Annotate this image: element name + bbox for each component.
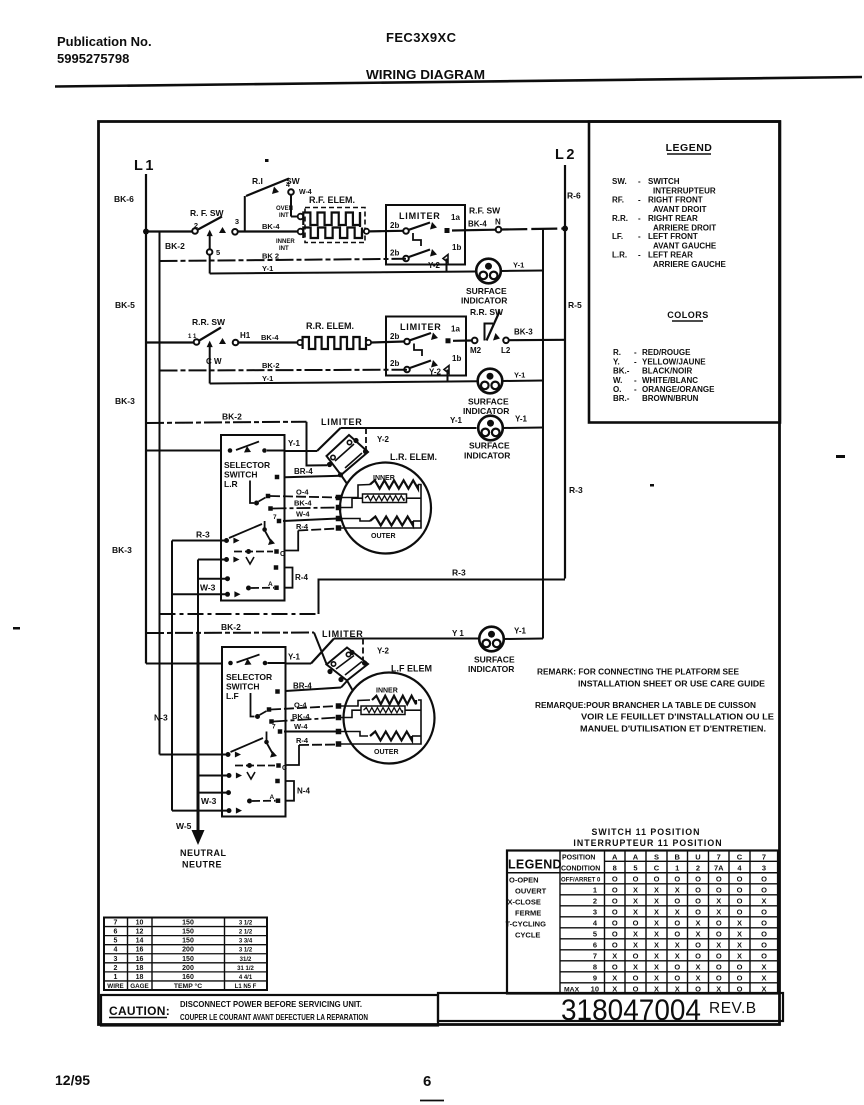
svg-text:-: - <box>638 232 641 241</box>
svg-text:BLACK/NOIR: BLACK/NOIR <box>642 367 692 376</box>
svg-text:X: X <box>695 974 700 983</box>
svg-text:L2: L2 <box>501 346 511 355</box>
svg-text:7: 7 <box>762 853 766 862</box>
svg-text:SWITCH: SWITCH <box>224 470 258 480</box>
svg-text:R-3: R-3 <box>569 485 583 495</box>
svg-text:-: - <box>634 348 637 357</box>
svg-text:SELECTOR: SELECTOR <box>226 672 272 682</box>
svg-text:C: C <box>654 864 660 873</box>
svg-text:O: O <box>761 908 767 917</box>
svg-text:O: O <box>737 875 743 884</box>
svg-text:W-3: W-3 <box>201 796 217 806</box>
svg-text:COLORS: COLORS <box>667 310 709 320</box>
svg-text:NEUTRE: NEUTRE <box>182 860 222 870</box>
svg-text:O: O <box>612 963 618 972</box>
svg-text:LIMITER: LIMITER <box>400 322 442 332</box>
svg-text:INDICATOR: INDICATOR <box>461 296 507 306</box>
svg-text:RIGHT FRONT: RIGHT FRONT <box>648 196 703 205</box>
svg-text:X: X <box>654 919 659 928</box>
svg-text:L.R. ELEM.: L.R. ELEM. <box>390 452 437 462</box>
svg-text:16: 16 <box>136 956 144 963</box>
svg-text:O: O <box>716 974 722 983</box>
svg-text:SWITCH: SWITCH <box>226 682 260 692</box>
svg-text:O: O <box>654 875 660 884</box>
svg-text:INT: INT <box>279 246 289 252</box>
svg-text:7: 7 <box>273 514 277 521</box>
svg-text:R.: R. <box>613 348 621 357</box>
svg-text:LEGEND: LEGEND <box>666 142 713 154</box>
svg-text:10: 10 <box>136 920 144 927</box>
svg-text:OVEN: OVEN <box>276 206 293 212</box>
svg-text:O: O <box>716 963 722 972</box>
svg-text:MANUEL D'UTILISATION ET D'ENTR: MANUEL D'UTILISATION ET D'ENTRETIEN. <box>580 724 766 734</box>
svg-text:INDICATOR: INDICATOR <box>464 451 510 461</box>
svg-text:INNER: INNER <box>376 688 398 695</box>
svg-text:2: 2 <box>593 897 597 906</box>
svg-text:R.R.: R.R. <box>612 214 628 223</box>
svg-text:O: O <box>695 952 701 961</box>
svg-text:U: U <box>695 853 700 862</box>
svg-text:C: C <box>737 853 743 862</box>
svg-text:O: O <box>633 974 639 983</box>
svg-text:AVANT DROIT: AVANT DROIT <box>653 205 707 214</box>
svg-text:Y-1: Y-1 <box>514 627 527 636</box>
svg-text:L2: L2 <box>555 147 577 163</box>
svg-text:X: X <box>654 974 659 983</box>
svg-text:4: 4 <box>114 947 118 954</box>
svg-text:N-4: N-4 <box>297 787 310 796</box>
svg-text:Y-1: Y-1 <box>262 374 273 383</box>
svg-text:O: O <box>695 908 701 917</box>
svg-text:X: X <box>654 897 659 906</box>
svg-text:2: 2 <box>114 965 118 972</box>
svg-text:RED/ROUGE: RED/ROUGE <box>642 348 691 357</box>
svg-text:WHITE/BLANC: WHITE/BLANC <box>642 376 698 385</box>
svg-text:N: N <box>495 218 501 227</box>
svg-text:150: 150 <box>182 938 194 945</box>
svg-text:O: O <box>674 875 680 884</box>
svg-text:POSITION: POSITION <box>562 855 595 862</box>
svg-text:3: 3 <box>114 956 118 963</box>
svg-text:-: - <box>638 251 641 260</box>
svg-text:INTERRUPTEUR 11 POSITION: INTERRUPTEUR 11 POSITION <box>573 838 722 848</box>
svg-text:X: X <box>633 963 638 972</box>
svg-text:1: 1 <box>114 974 118 981</box>
svg-text:ORANGE/ORANGE: ORANGE/ORANGE <box>642 385 715 394</box>
svg-text:BK.-: BK.- <box>613 367 630 376</box>
svg-text:WIRING DIAGRAM: WIRING DIAGRAM <box>366 68 485 82</box>
svg-text:O: O <box>612 908 618 917</box>
svg-text:Y 1: Y 1 <box>452 629 464 638</box>
svg-text:R-5: R-5 <box>568 300 582 310</box>
svg-text:1b: 1b <box>452 354 461 363</box>
svg-text:LF.: LF. <box>612 232 623 241</box>
svg-text:X: X <box>633 897 638 906</box>
svg-text:X: X <box>737 919 742 928</box>
svg-text:REMARQUE:POUR BRANCHER LA TABL: REMARQUE:POUR BRANCHER LA TABLE DE CUISS… <box>535 700 756 710</box>
svg-text:31 1/2: 31 1/2 <box>237 966 254 972</box>
svg-text:FERME: FERME <box>515 909 541 918</box>
svg-text:INT: INT <box>279 213 289 219</box>
svg-text:4: 4 <box>286 182 290 189</box>
svg-text:9: 9 <box>593 974 597 983</box>
svg-text:6: 6 <box>423 1073 431 1090</box>
svg-text:O: O <box>695 875 701 884</box>
svg-text:SWITCH 11 POSITION: SWITCH 11 POSITION <box>592 827 701 837</box>
svg-text:6: 6 <box>114 929 118 936</box>
svg-text:FEC3X9XC: FEC3X9XC <box>386 30 457 45</box>
svg-text:W-3: W-3 <box>200 583 216 593</box>
svg-text:INDICATOR: INDICATOR <box>468 664 514 674</box>
svg-text:O: O <box>716 919 722 928</box>
svg-text:3: 3 <box>762 864 766 873</box>
svg-text:BK-3: BK-3 <box>514 328 533 337</box>
svg-text:SURFACE: SURFACE <box>474 655 515 665</box>
svg-text:X: X <box>716 897 721 906</box>
svg-text:CYCLE: CYCLE <box>515 931 540 940</box>
svg-text:BK-6: BK-6 <box>114 194 134 204</box>
svg-text:Y-2: Y-2 <box>428 261 441 270</box>
svg-text:7: 7 <box>717 853 721 862</box>
svg-text:LIMITER: LIMITER <box>321 417 363 427</box>
svg-text:O: O <box>716 952 722 961</box>
svg-text:BK-4: BK-4 <box>294 499 312 508</box>
svg-text:B: B <box>675 853 681 862</box>
svg-text:R. F. SW: R. F. SW <box>190 208 225 218</box>
svg-text:H1: H1 <box>240 331 251 340</box>
svg-text:LEGEND: LEGEND <box>508 858 562 872</box>
svg-text:R-3: R-3 <box>452 568 466 578</box>
svg-text:X: X <box>633 886 638 895</box>
svg-text:BK-2: BK-2 <box>262 361 280 370</box>
svg-text:LEFT FRONT: LEFT FRONT <box>648 232 698 241</box>
svg-text:O: O <box>737 908 743 917</box>
svg-text:2 1/2: 2 1/2 <box>239 930 253 936</box>
svg-text:RIGHT REAR: RIGHT REAR <box>648 214 698 223</box>
svg-text:OUVERT: OUVERT <box>515 887 547 896</box>
svg-text:O: O <box>716 930 722 939</box>
svg-text:T-CYCLING: T-CYCLING <box>506 920 547 929</box>
svg-text:L.R: L.R <box>224 479 238 489</box>
svg-text:W-5: W-5 <box>176 821 192 831</box>
svg-text:7A: 7A <box>714 864 724 873</box>
svg-text:R-4: R-4 <box>296 522 309 531</box>
svg-text:CAUTION:: CAUTION: <box>109 1004 170 1018</box>
svg-text:2: 2 <box>194 221 198 230</box>
svg-text:O: O <box>716 875 722 884</box>
svg-text:3: 3 <box>593 908 597 917</box>
svg-text:150: 150 <box>182 929 194 936</box>
svg-text:2b: 2b <box>390 332 399 341</box>
svg-text:RF.: RF. <box>612 196 624 205</box>
svg-text:O: O <box>612 886 618 895</box>
svg-text:O: O <box>761 952 767 961</box>
svg-text:BR-4: BR-4 <box>294 467 313 476</box>
svg-text:X: X <box>654 952 659 961</box>
svg-text:Y-1: Y-1 <box>515 415 528 424</box>
svg-text:COUPER LE COURANT AVANT DEFECT: COUPER LE COURANT AVANT DEFECTUER LA REP… <box>180 1012 368 1022</box>
svg-text:O-OPEN: O-OPEN <box>509 876 539 885</box>
svg-text:DISCONNECT POWER BEFORE SERVIC: DISCONNECT POWER BEFORE SERVICING UNIT. <box>180 999 362 1009</box>
svg-text:A: A <box>612 853 618 862</box>
svg-text:1b: 1b <box>452 243 461 252</box>
svg-text:2b: 2b <box>390 221 399 230</box>
svg-text:X: X <box>654 941 659 950</box>
svg-text:ARRIERE GAUCHE: ARRIERE GAUCHE <box>653 260 727 269</box>
svg-text:5995275798: 5995275798 <box>57 51 129 66</box>
svg-text:BK-4: BK-4 <box>468 220 487 229</box>
svg-text:O: O <box>612 875 618 884</box>
svg-text:SW.: SW. <box>612 177 627 186</box>
svg-text:WIRE: WIRE <box>107 983 123 990</box>
svg-text:R-3: R-3 <box>196 530 210 540</box>
svg-text:SELECTOR: SELECTOR <box>224 460 270 470</box>
svg-text:7: 7 <box>272 724 276 731</box>
svg-text:REV.B: REV.B <box>709 1000 757 1017</box>
svg-text:6: 6 <box>593 941 597 950</box>
svg-text:Y-1: Y-1 <box>288 439 301 448</box>
svg-text:12/95: 12/95 <box>55 1072 90 1088</box>
svg-text:C: C <box>282 765 287 772</box>
svg-text:318047004: 318047004 <box>561 994 701 1027</box>
svg-text:16: 16 <box>136 947 144 954</box>
svg-text:O-4: O-4 <box>294 701 307 710</box>
svg-text:INSTALLATION SHEET OR USE CARE: INSTALLATION SHEET OR USE CARE GUIDE <box>578 679 765 689</box>
svg-text:W-4: W-4 <box>296 510 310 519</box>
svg-text:O: O <box>695 897 701 906</box>
svg-text:Y-2: Y-2 <box>377 647 390 656</box>
svg-text:18: 18 <box>136 965 144 972</box>
svg-text:BROWN/BRUN: BROWN/BRUN <box>642 394 699 403</box>
svg-text:O-4: O-4 <box>296 488 309 497</box>
svg-text:X: X <box>633 908 638 917</box>
svg-text:X: X <box>716 908 721 917</box>
svg-text:1: 1 <box>675 864 679 873</box>
svg-text:LEFT REAR: LEFT REAR <box>648 251 693 260</box>
svg-text:O: O <box>674 897 680 906</box>
svg-text:OFF/ARRET 0: OFF/ARRET 0 <box>561 878 601 884</box>
svg-text:O: O <box>674 974 680 983</box>
svg-text:O: O <box>737 974 743 983</box>
svg-text:O: O <box>674 930 680 939</box>
svg-text:SWITCH: SWITCH <box>648 177 680 186</box>
svg-text:BK-2: BK-2 <box>221 622 241 632</box>
svg-text:X: X <box>695 963 700 972</box>
svg-text:X: X <box>654 908 659 917</box>
svg-text:CONDITION: CONDITION <box>561 866 600 873</box>
svg-text:7: 7 <box>593 952 597 961</box>
svg-text:REMARK: FOR CONNECTING THE PLA: REMARK: FOR CONNECTING THE PLATFORM SEE <box>537 667 739 677</box>
svg-text:R-4: R-4 <box>296 736 309 745</box>
svg-text:X: X <box>675 941 680 950</box>
svg-text:O: O <box>761 875 767 884</box>
svg-text:3 1/2: 3 1/2 <box>239 948 253 954</box>
svg-text:BK-2: BK-2 <box>165 241 185 251</box>
svg-text:O: O <box>737 963 743 972</box>
svg-text:31/2: 31/2 <box>240 957 252 963</box>
svg-text:-: - <box>638 177 641 186</box>
svg-text:O: O <box>674 963 680 972</box>
svg-text:X: X <box>675 952 680 961</box>
svg-text:O: O <box>633 952 639 961</box>
svg-text:M2: M2 <box>470 346 482 355</box>
svg-text:Publication No.: Publication No. <box>57 34 152 49</box>
svg-text:1a: 1a <box>451 325 460 334</box>
svg-text:R.R. SW: R.R. SW <box>192 317 226 327</box>
svg-text:N-3: N-3 <box>154 713 168 723</box>
svg-text:NEUTRAL: NEUTRAL <box>180 848 227 858</box>
svg-text:A: A <box>270 794 275 801</box>
svg-text:X-CLOSE: X-CLOSE <box>508 898 541 907</box>
svg-text:X: X <box>737 952 742 961</box>
svg-text:X: X <box>612 974 617 983</box>
svg-text:X: X <box>716 941 721 950</box>
svg-text:7: 7 <box>114 920 118 927</box>
svg-text:R.F. ELEM.: R.F. ELEM. <box>309 195 355 205</box>
svg-text:TEMP °C: TEMP °C <box>174 982 202 990</box>
svg-text:L.R.: L.R. <box>612 251 627 260</box>
svg-text:BR-4: BR-4 <box>293 682 312 691</box>
svg-text:O: O <box>612 897 618 906</box>
svg-text:-: - <box>638 214 641 223</box>
svg-text:O: O <box>633 919 639 928</box>
svg-text:LIMITER: LIMITER <box>399 211 441 221</box>
svg-text:8: 8 <box>613 864 617 873</box>
svg-text:SURFACE: SURFACE <box>466 286 507 296</box>
svg-text:X: X <box>654 886 659 895</box>
svg-text:BK 2: BK 2 <box>262 252 279 261</box>
svg-text:S: S <box>654 853 659 862</box>
svg-text:O: O <box>761 919 767 928</box>
svg-text:YELLOW/JAUNE: YELLOW/JAUNE <box>642 358 706 367</box>
svg-text:INNER: INNER <box>276 239 295 245</box>
svg-text:200: 200 <box>182 965 194 972</box>
svg-text:1: 1 <box>593 886 597 895</box>
svg-text:BK-3: BK-3 <box>112 545 132 555</box>
svg-text:O: O <box>695 886 701 895</box>
svg-text:BK-3: BK-3 <box>115 396 135 406</box>
svg-text:W.: W. <box>613 376 622 385</box>
svg-text:INDICATOR: INDICATOR <box>463 406 509 416</box>
svg-text:X: X <box>654 930 659 939</box>
svg-text:5: 5 <box>633 864 637 873</box>
svg-text:AVANT GAUCHE: AVANT GAUCHE <box>653 242 717 251</box>
svg-text:R-4: R-4 <box>295 573 308 582</box>
svg-text:X: X <box>675 908 680 917</box>
svg-text:R-6: R-6 <box>567 191 581 201</box>
svg-text:X: X <box>761 974 766 983</box>
svg-text:3 1/2: 3 1/2 <box>239 921 253 927</box>
svg-text:A: A <box>633 853 639 862</box>
svg-text:O: O <box>737 886 743 895</box>
svg-text:3 3/4: 3 3/4 <box>239 939 253 945</box>
svg-text:W-4: W-4 <box>294 722 308 731</box>
svg-text:O.: O. <box>613 385 621 394</box>
svg-text:Y-1: Y-1 <box>514 371 525 380</box>
svg-text:VOIR LE FEUILLET D'INSTALLATIO: VOIR LE FEUILLET D'INSTALLATION OU LE <box>581 712 774 722</box>
svg-text:L.F: L.F <box>226 691 239 701</box>
svg-text:O: O <box>737 897 743 906</box>
svg-text:Y-1: Y-1 <box>262 264 273 273</box>
svg-text:GAGE: GAGE <box>130 983 149 990</box>
svg-text:C W: C W <box>206 357 222 366</box>
svg-text:R.I: R.I <box>252 176 263 186</box>
svg-text:BK-4: BK-4 <box>261 333 279 342</box>
svg-text:2b: 2b <box>390 249 399 258</box>
svg-text:O: O <box>612 941 618 950</box>
svg-text:8: 8 <box>593 963 597 972</box>
svg-text:2b: 2b <box>390 359 399 368</box>
svg-text:X: X <box>737 930 742 939</box>
svg-text:-: - <box>638 196 641 205</box>
svg-text:X: X <box>633 941 638 950</box>
svg-text:L.F ELEM: L.F ELEM <box>391 664 432 674</box>
svg-text:3: 3 <box>235 217 239 226</box>
svg-text:SURFACE: SURFACE <box>468 397 509 407</box>
svg-text:BK-5: BK-5 <box>115 300 135 310</box>
svg-text:18: 18 <box>136 974 144 981</box>
svg-text:1a: 1a <box>451 213 460 222</box>
svg-text:Y-2: Y-2 <box>377 435 390 444</box>
svg-text:O: O <box>761 886 767 895</box>
svg-text:OUTER: OUTER <box>371 533 396 540</box>
svg-text:R.R. ELEM.: R.R. ELEM. <box>306 321 354 331</box>
svg-text:-: - <box>634 358 637 367</box>
svg-text:X: X <box>675 886 680 895</box>
svg-text:O: O <box>633 875 639 884</box>
svg-text:-: - <box>634 385 637 394</box>
svg-text:C: C <box>280 551 285 558</box>
svg-text:BK-4: BK-4 <box>262 222 280 231</box>
svg-text:R.F. SW: R.F. SW <box>469 206 501 216</box>
svg-text:X: X <box>612 952 617 961</box>
svg-text:X: X <box>737 941 742 950</box>
svg-text:Y-1: Y-1 <box>288 653 301 662</box>
svg-text:5: 5 <box>593 930 597 939</box>
svg-text:O: O <box>761 930 767 939</box>
svg-text:BK-2: BK-2 <box>222 412 242 422</box>
svg-text:O: O <box>716 886 722 895</box>
svg-text:X: X <box>761 897 766 906</box>
svg-text:L1: L1 <box>134 158 156 174</box>
svg-text:12: 12 <box>136 929 144 936</box>
svg-text:5: 5 <box>114 938 118 945</box>
svg-text:160: 160 <box>182 974 194 981</box>
svg-text:-: - <box>634 376 637 385</box>
svg-text:BK-4: BK-4 <box>292 712 310 721</box>
svg-text:Y-1: Y-1 <box>450 416 463 425</box>
svg-text:INTERRUPTEUR: INTERRUPTEUR <box>653 187 716 196</box>
svg-text:O: O <box>612 930 618 939</box>
svg-text:2: 2 <box>696 864 700 873</box>
svg-text:Y-1: Y-1 <box>513 261 524 270</box>
svg-text:14: 14 <box>136 938 144 945</box>
svg-text:5: 5 <box>216 248 220 257</box>
svg-text:150: 150 <box>182 956 194 963</box>
svg-text:O: O <box>612 919 618 928</box>
svg-text:200: 200 <box>182 947 194 954</box>
svg-text:X: X <box>695 930 700 939</box>
svg-text:X: X <box>633 930 638 939</box>
svg-text:X: X <box>761 963 766 972</box>
svg-text:150: 150 <box>182 920 194 927</box>
svg-text:4 4/1: 4 4/1 <box>239 975 253 981</box>
svg-text:Y-2: Y-2 <box>429 368 442 377</box>
svg-text:OUTER: OUTER <box>374 749 399 756</box>
svg-text:O: O <box>674 919 680 928</box>
svg-text:X: X <box>695 919 700 928</box>
svg-text:BR.-: BR.- <box>613 394 630 403</box>
